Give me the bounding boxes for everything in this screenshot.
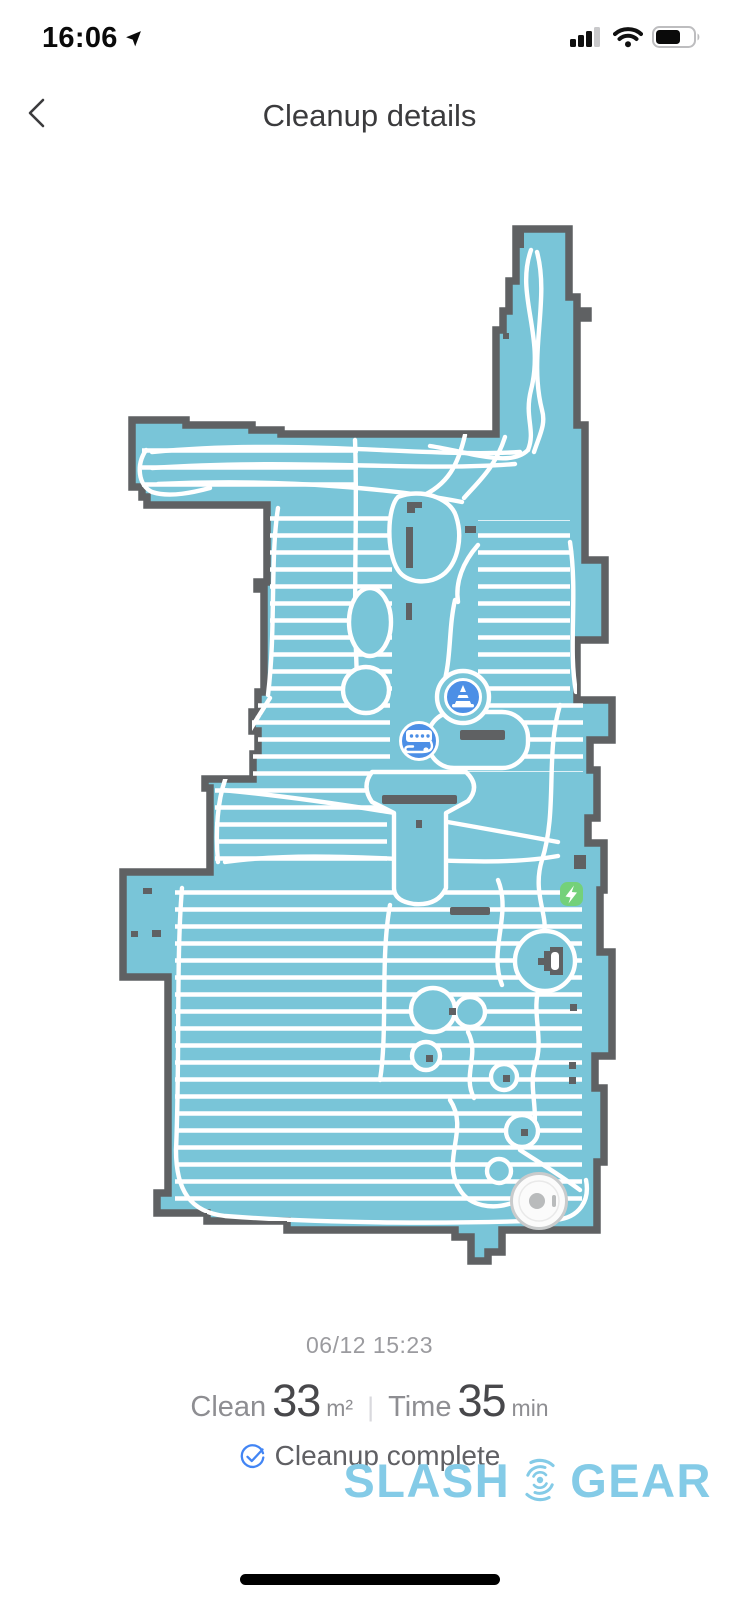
gear-swirl-icon [512,1452,568,1508]
watermark-text-left: SLASH [343,1453,510,1508]
cleanup-date: 06/12 15:23 [0,1332,739,1359]
time-value: 35 [457,1375,505,1427]
clean-area-value: 33 [272,1375,320,1427]
watermark-text-right: GEAR [570,1453,712,1508]
check-circle-icon [239,1443,266,1470]
robot-vacuum-marker [512,1174,567,1229]
clean-label: Clean [190,1391,266,1424]
cleanup-stats: 06/12 15:23 Clean 33 m² | Time 35 min Cl… [0,1332,739,1472]
clean-area-unit: m² [326,1395,353,1422]
stats-row: Clean 33 m² | Time 35 min [0,1375,739,1427]
time-label: Time [388,1391,451,1424]
stats-divider: | [367,1392,374,1423]
cone-marker[interactable] [446,680,481,715]
home-indicator[interactable] [240,1574,500,1585]
charging-flash-icon [560,882,583,906]
time-unit: min [512,1395,549,1422]
power-strip-marker[interactable] [401,723,438,760]
slashgear-watermark: SLASH GEAR [343,1452,712,1508]
